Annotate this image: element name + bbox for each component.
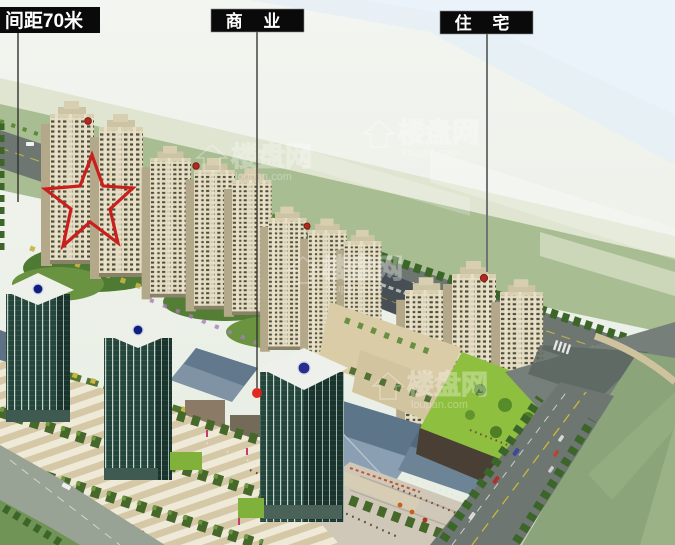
- rooftop-emblem-icon: [304, 223, 310, 229]
- glass-tower-1: [2, 273, 74, 422]
- watermark-domain: loupan.com: [326, 283, 383, 295]
- rooftop-emblem-icon: [193, 163, 199, 169]
- callout-label-residential: 住 宅: [440, 11, 533, 34]
- rendering-canvas: 楼盘网 loupan.com 楼盘网 loupan.com 楼盘网 loupan…: [0, 0, 675, 545]
- callout-label-spacing: 间距70米: [0, 7, 100, 33]
- label-spacing-text: 间距70米: [5, 9, 84, 32]
- label-residential-text: 住 宅: [455, 13, 518, 33]
- callout-label-commercial: 商 业: [211, 9, 304, 32]
- watermark-domain: loupan.com: [235, 171, 292, 183]
- label-commercial-text: 商 业: [226, 11, 289, 31]
- residential-cluster-a: [41, 101, 143, 279]
- watermark-brand: 楼盘网: [398, 117, 479, 148]
- aerial-masterplan-rendering: 楼盘网 loupan.com 楼盘网 loupan.com 楼盘网 loupan…: [0, 0, 675, 545]
- tower-logo-icon: [133, 325, 143, 335]
- watermark-domain: loupan.com: [411, 399, 468, 411]
- watermark-brand: 楼盘网: [231, 141, 312, 172]
- rooftop-emblem-icon: [480, 274, 487, 281]
- watermark-domain: loupan.com: [402, 147, 459, 159]
- tower-logo-icon: [298, 362, 310, 374]
- tower-logo-icon: [33, 284, 43, 294]
- watermark-brand: 楼盘网: [407, 369, 488, 400]
- red-dot: [252, 388, 262, 398]
- rooftop-emblem-icon: [85, 118, 92, 125]
- watermark-brand: 楼盘网: [322, 253, 403, 284]
